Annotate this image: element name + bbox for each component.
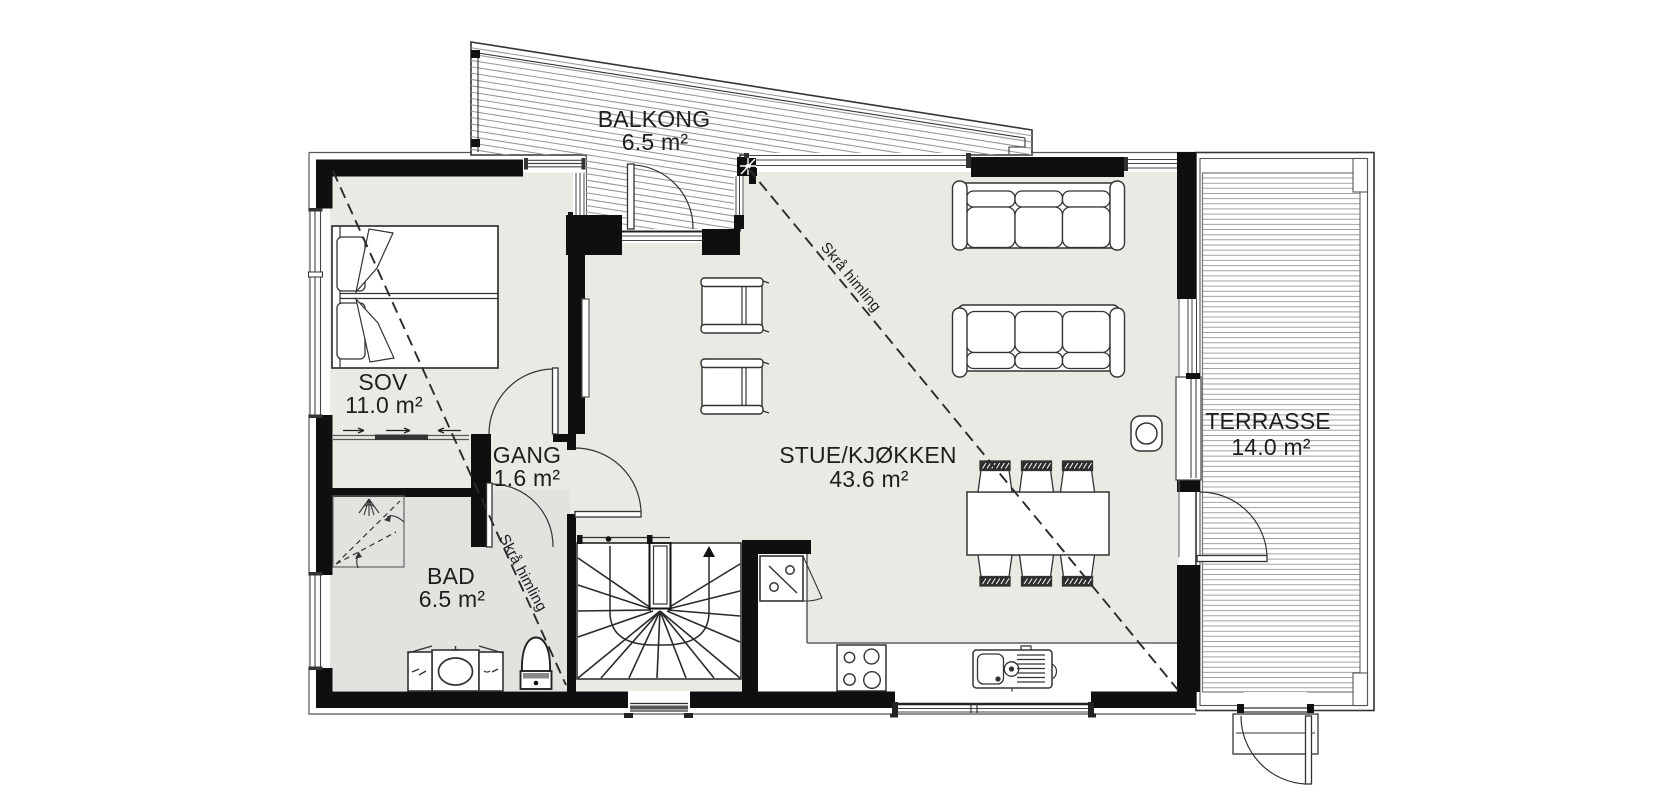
svg-text:6.5 m²: 6.5 m² [419, 586, 486, 612]
svg-text:43.6 m²: 43.6 m² [829, 466, 909, 492]
svg-text:6.5 m²: 6.5 m² [622, 129, 689, 155]
svg-text:1.6 m²: 1.6 m² [494, 465, 561, 491]
svg-text:11.0 m²: 11.0 m² [345, 392, 423, 418]
svg-text:14.0 m²: 14.0 m² [1231, 434, 1311, 460]
svg-text:TERRASSE: TERRASSE [1205, 408, 1331, 434]
svg-text:STUE/KJØKKEN: STUE/KJØKKEN [779, 442, 957, 468]
